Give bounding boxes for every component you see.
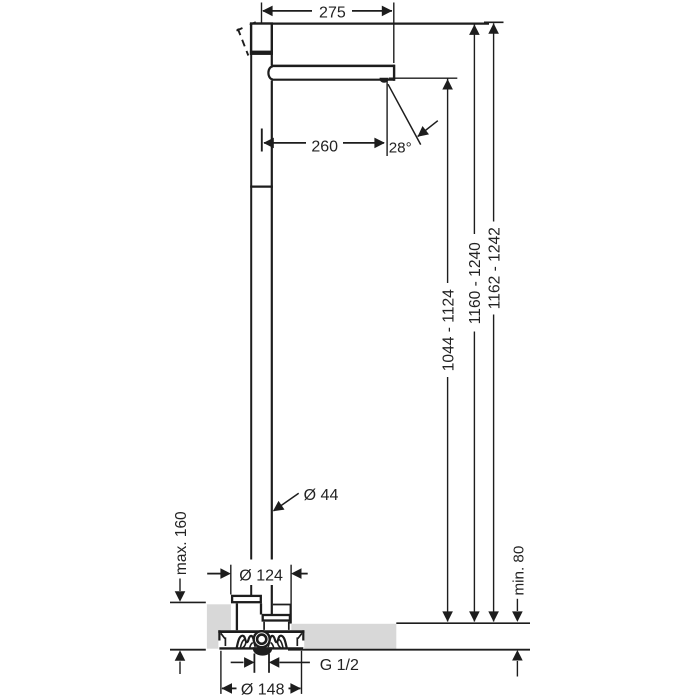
svg-text:260: 260 <box>311 138 338 155</box>
svg-text:28°: 28° <box>389 139 412 156</box>
svg-text:1162 - 1242: 1162 - 1242 <box>486 227 503 309</box>
svg-text:1160 - 1240: 1160 - 1240 <box>467 242 484 324</box>
svg-text:Ø 148: Ø 148 <box>241 682 285 699</box>
svg-text:Ø 124: Ø 124 <box>239 568 283 585</box>
svg-text:G 1/2: G 1/2 <box>320 657 359 674</box>
svg-text:min. 80: min. 80 <box>510 546 527 596</box>
svg-text:275: 275 <box>319 4 346 21</box>
svg-text:max. 160: max. 160 <box>173 511 190 575</box>
svg-text:Ø 44: Ø 44 <box>304 487 339 504</box>
svg-text:1044 - 1124: 1044 - 1124 <box>440 289 457 371</box>
